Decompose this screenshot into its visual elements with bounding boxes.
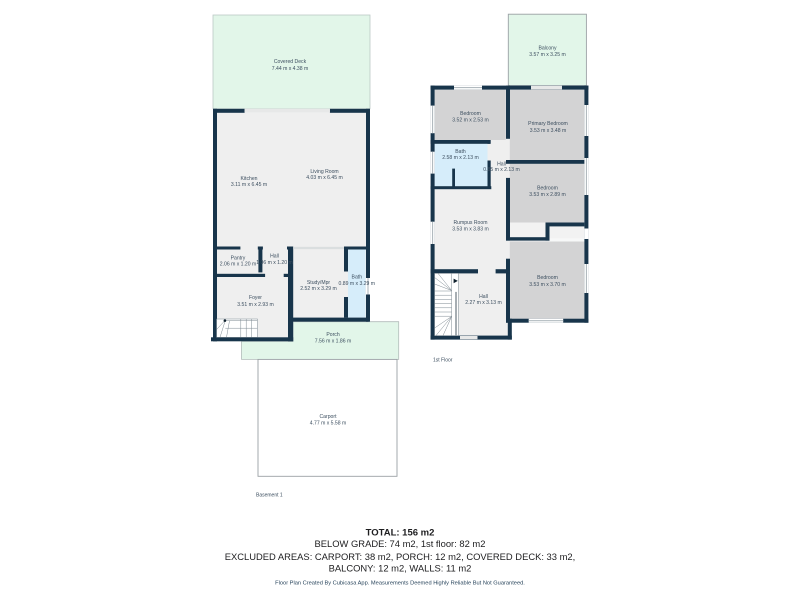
svg-text:Balcony: Balcony [538, 46, 557, 52]
svg-text:4.77 m x 5.58 m: 4.77 m x 5.58 m [310, 420, 347, 426]
svg-text:3.53 m x 3.83 m: 3.53 m x 3.83 m [452, 227, 489, 233]
svg-text:Rumpus Room: Rumpus Room [454, 220, 488, 226]
svg-text:0.89 m x 3.29 m: 0.89 m x 3.29 m [339, 281, 376, 287]
svg-text:Carport: Carport [320, 414, 338, 420]
svg-text:7.56 m x 1.86 m: 7.56 m x 1.86 m [315, 338, 352, 344]
svg-text:3.52 m x 2.53 m: 3.52 m x 2.53 m [452, 117, 489, 123]
svg-text:7.44 m x 4.38 m: 7.44 m x 4.38 m [272, 66, 309, 72]
svg-text:2.27 m x 3.13 m: 2.27 m x 3.13 m [465, 300, 502, 306]
svg-text:Bath: Bath [455, 149, 466, 155]
svg-text:Primary Bedroom: Primary Bedroom [528, 121, 568, 127]
svg-text:Covered Deck: Covered Deck [274, 59, 307, 65]
svg-text:3.53 m x 2.89 m: 3.53 m x 2.89 m [529, 192, 566, 198]
svg-text:2.52 m x 3.29 m: 2.52 m x 3.29 m [300, 286, 337, 292]
svg-text:BALCONY: 12 m2, WALLS: 11 m2: BALCONY: 12 m2, WALLS: 11 m2 [329, 563, 472, 574]
svg-text:Bedroom: Bedroom [537, 186, 558, 192]
svg-text:Hall: Hall [270, 253, 279, 259]
svg-text:3.57 m x 3.25 m: 3.57 m x 3.25 m [529, 52, 566, 58]
svg-text:Floor Plan Created By Cubicasa: Floor Plan Created By Cubicasa App. Meas… [275, 581, 525, 587]
svg-text:2.58 m x 2.13 m: 2.58 m x 2.13 m [442, 155, 479, 161]
svg-text:TOTAL: 156 m2: TOTAL: 156 m2 [366, 528, 435, 539]
svg-text:3.53 m x 3.48 m: 3.53 m x 3.48 m [530, 128, 567, 134]
svg-text:Living Room: Living Room [310, 169, 338, 175]
svg-text:0.85 m x 2.13 m: 0.85 m x 2.13 m [483, 167, 520, 173]
svg-text:BELOW GRADE: 74 m2, 1st floor:: BELOW GRADE: 74 m2, 1st floor: 82 m2 [315, 538, 486, 549]
svg-text:Bedroom: Bedroom [537, 275, 558, 281]
svg-text:3.11 m x 6.45 m: 3.11 m x 6.45 m [231, 182, 267, 188]
svg-text:1st Floor: 1st Floor [433, 357, 453, 363]
svg-text:Bath: Bath [352, 275, 363, 281]
svg-text:Foyer: Foyer [249, 295, 262, 301]
svg-text:Porch: Porch [326, 332, 339, 338]
svg-text:4.03 m x 6.45 m: 4.03 m x 6.45 m [306, 175, 343, 181]
svg-text:2.06 m x 1.20 m: 2.06 m x 1.20 m [220, 262, 257, 268]
svg-text:1.06 m x 1.20 m: 1.06 m x 1.20 m [256, 260, 293, 266]
svg-text:Bedroom: Bedroom [460, 111, 481, 117]
svg-text:Basement 1: Basement 1 [256, 493, 283, 499]
svg-text:EXCLUDED AREAS: CARPORT: 38 m2: EXCLUDED AREAS: CARPORT: 38 m2, PORCH: 1… [225, 551, 575, 562]
svg-text:3.53 m x 3.70 m: 3.53 m x 3.70 m [529, 282, 566, 288]
svg-text:3.51 m x 2.93 m: 3.51 m x 2.93 m [237, 302, 274, 308]
svg-text:Pantry: Pantry [231, 256, 246, 262]
